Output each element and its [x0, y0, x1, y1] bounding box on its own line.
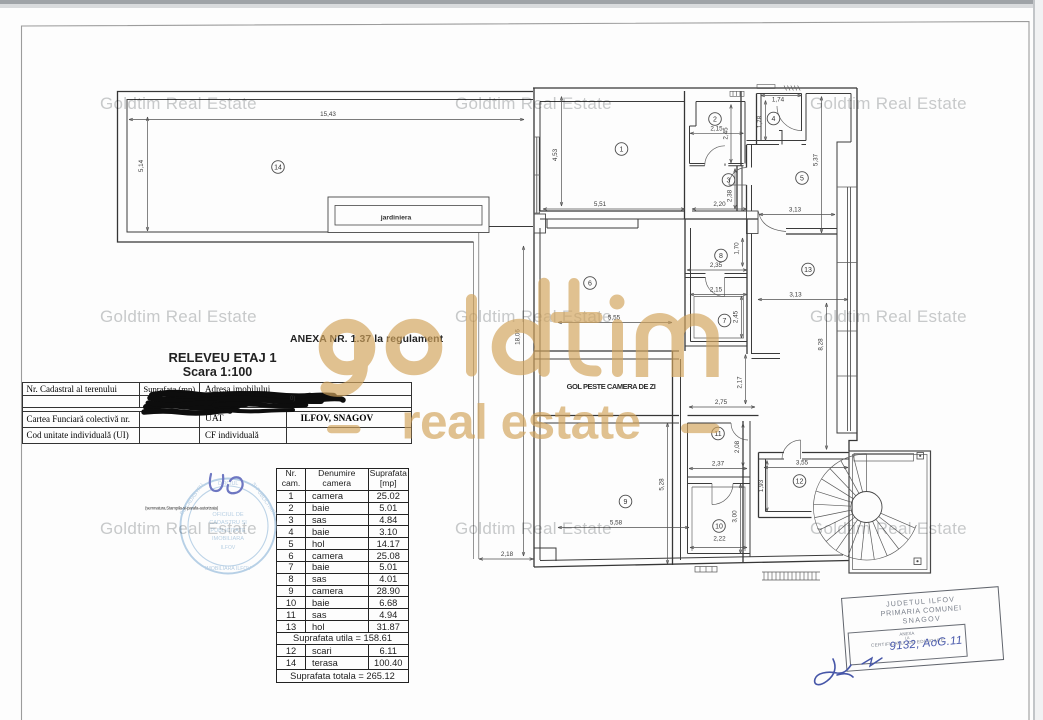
svg-text:real estate: real estate [401, 395, 640, 450]
